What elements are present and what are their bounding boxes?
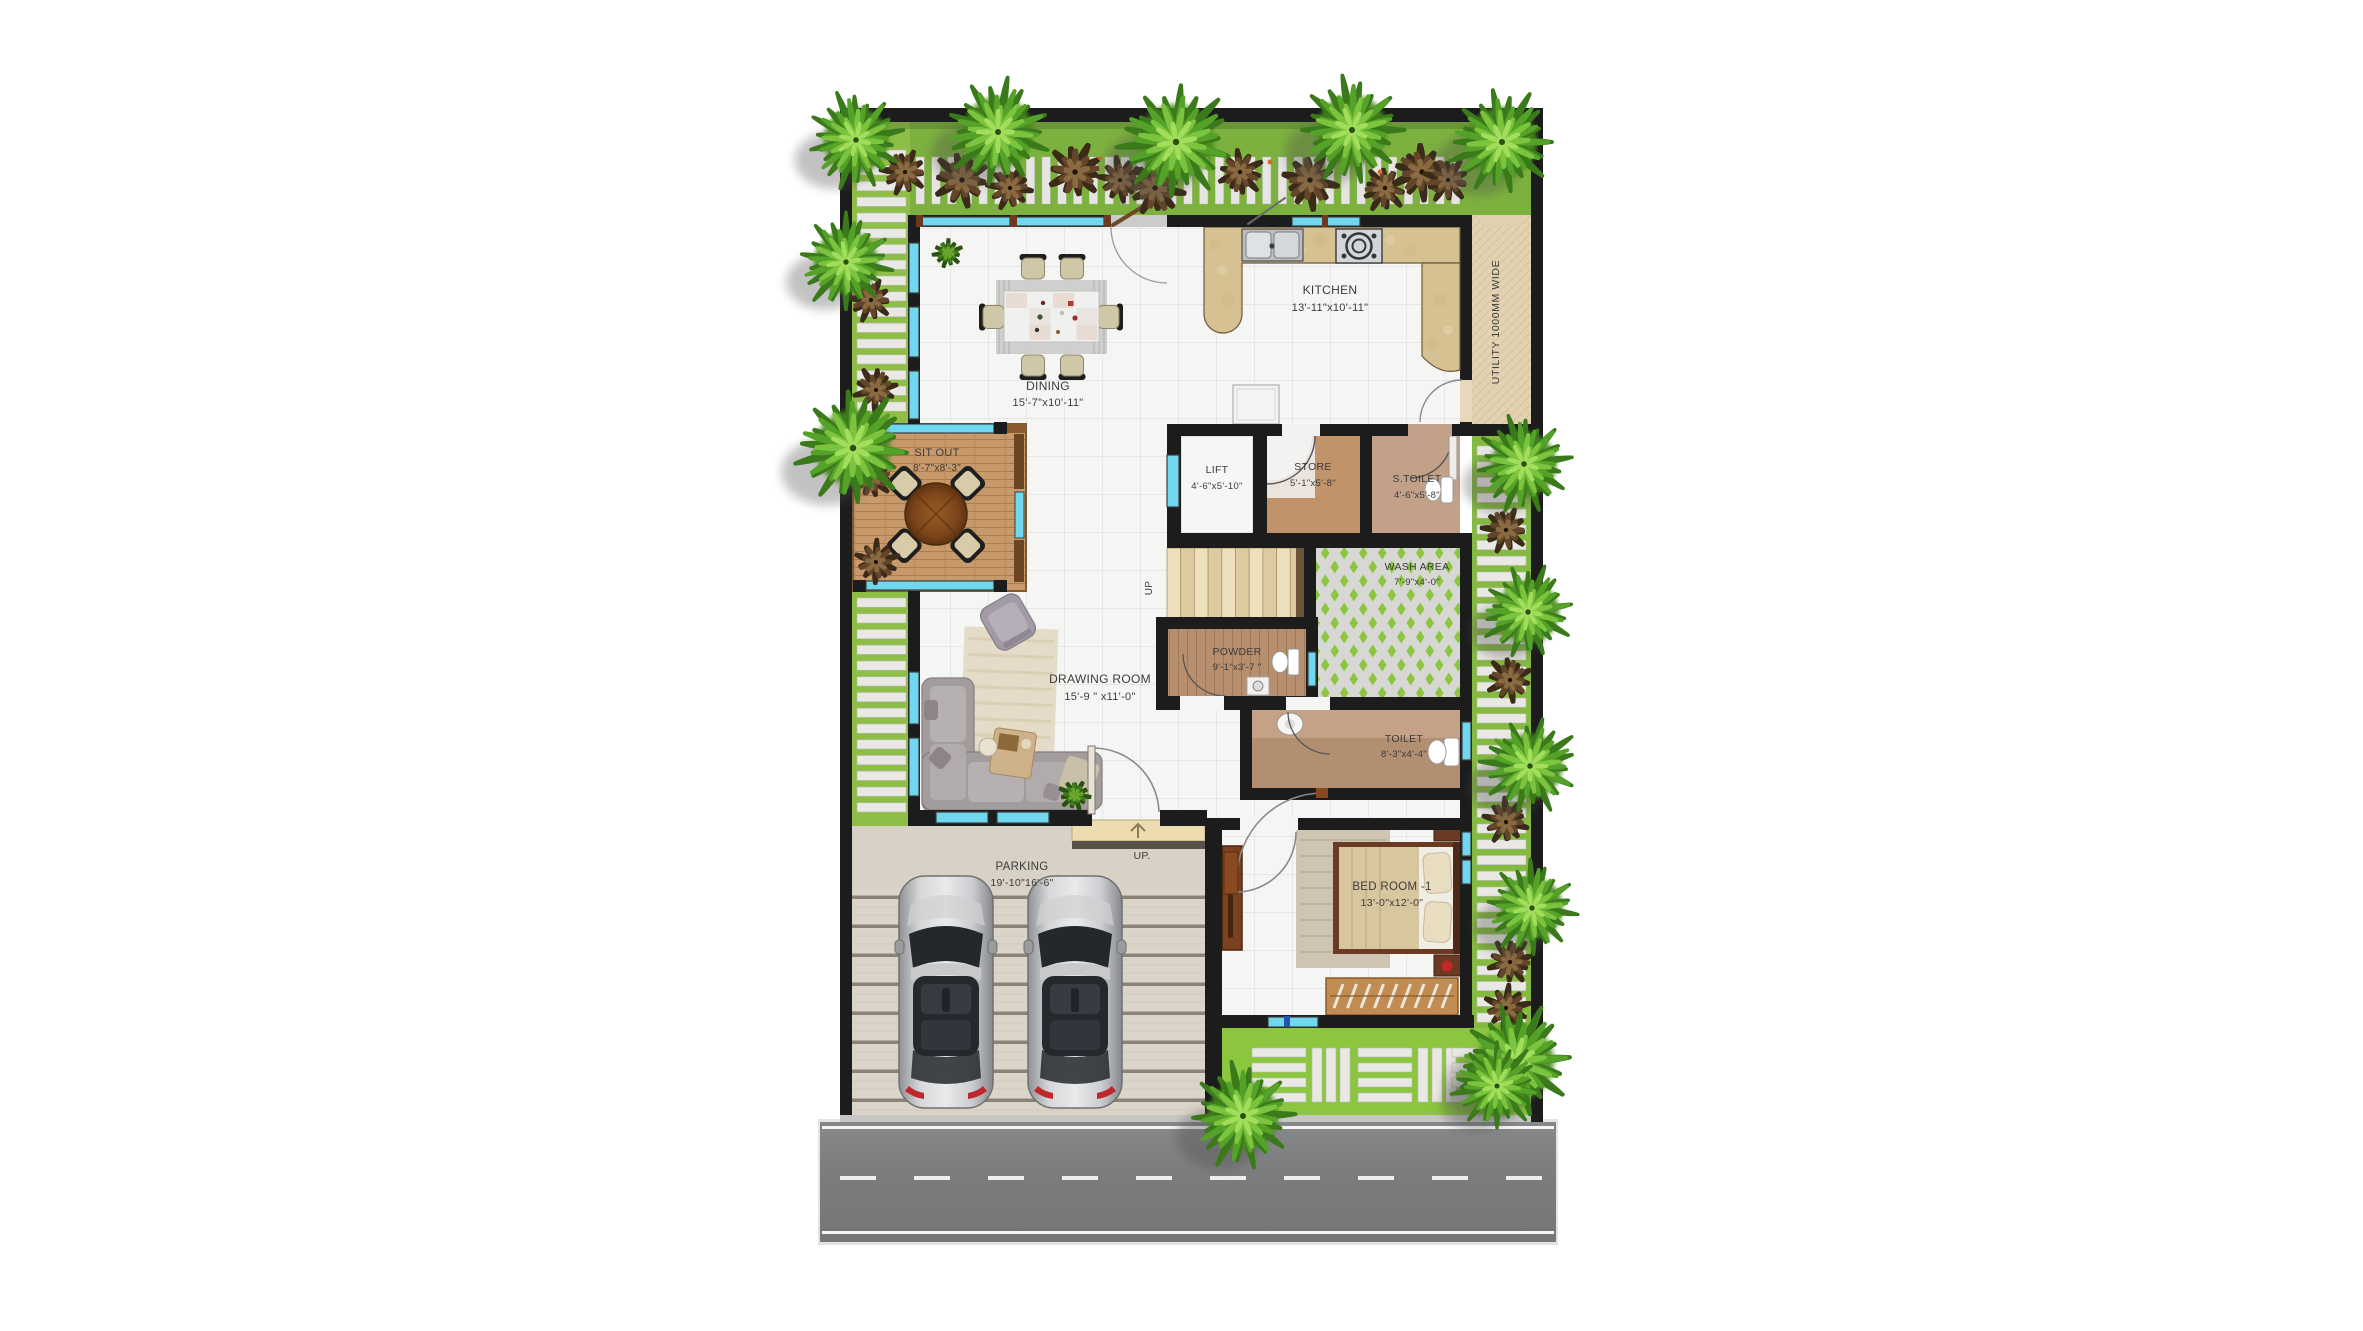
svg-text:UTILITY 1000MM WIDE: UTILITY 1000MM WIDE [1490,260,1502,384]
svg-text:LIFT: LIFT [1206,464,1229,476]
svg-text:POWDER: POWDER [1212,646,1261,658]
svg-text:19'-10"16'-6": 19'-10"16'-6" [990,877,1053,889]
svg-text:13'-11"x10'-11": 13'-11"x10'-11" [1292,302,1369,314]
svg-text:9'-1"x3'-7 ": 9'-1"x3'-7 " [1213,662,1262,673]
svg-text:DRAWING ROOM: DRAWING ROOM [1049,672,1151,686]
svg-text:5'-1"x5'-8": 5'-1"x5'-8" [1290,478,1336,489]
svg-text:S.TOILET: S.TOILET [1393,473,1442,485]
svg-text:TOILET: TOILET [1385,733,1424,745]
svg-text:8'-7"x8'-3": 8'-7"x8'-3" [913,463,961,474]
svg-text:UP: UP [1144,581,1155,596]
svg-text:7'-9"x4'-0": 7'-9"x4'-0" [1394,577,1440,588]
svg-text:4'-6"x5'-8": 4'-6"x5'-8" [1394,490,1440,501]
svg-text:13'-0"x12'-0": 13'-0"x12'-0" [1361,897,1424,909]
svg-text:8'-3"x4'-4": 8'-3"x4'-4" [1381,749,1427,760]
svg-text:4'-6"x5'-10": 4'-6"x5'-10" [1191,481,1242,492]
svg-text:BED ROOM -1: BED ROOM -1 [1352,881,1431,893]
svg-text:PARKING: PARKING [995,861,1048,873]
svg-text:SIT OUT: SIT OUT [914,447,959,459]
svg-text:DINING: DINING [1026,379,1070,393]
svg-text:15'-9 " x11'-0": 15'-9 " x11'-0" [1064,691,1135,703]
svg-text:15'-7"x10'-11": 15'-7"x10'-11" [1012,397,1083,409]
svg-text:WASH AREA: WASH AREA [1385,561,1450,573]
svg-text:STORE: STORE [1294,461,1331,473]
svg-text:UP.: UP. [1133,850,1150,862]
svg-text:KITCHEN: KITCHEN [1303,283,1358,297]
